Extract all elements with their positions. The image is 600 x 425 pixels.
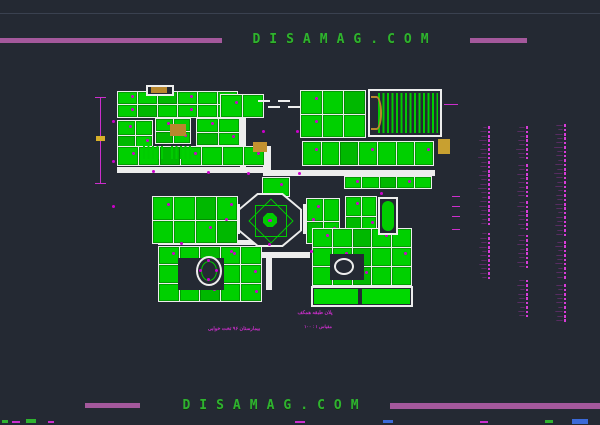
plan-bar-shape xyxy=(95,97,106,98)
door-symbol-dot xyxy=(112,205,115,208)
plan-room-cluster xyxy=(220,94,264,118)
door-symbol-dot xyxy=(211,122,214,125)
legend-row: ــــ xyxy=(460,276,490,279)
stage-arc-shape xyxy=(371,96,382,130)
edge-artifact xyxy=(545,420,553,423)
edge-artifact xyxy=(480,421,488,423)
door-symbol-dot xyxy=(280,183,283,186)
door-symbol-dot xyxy=(207,171,210,174)
door-symbol-dot xyxy=(215,269,218,272)
scale-caption: مقیاس ۱ : ۱۰۰ xyxy=(296,325,340,330)
edge-artifact xyxy=(26,419,36,423)
plan-hatch-area xyxy=(143,146,165,159)
door-symbol-dot xyxy=(315,120,318,123)
door-symbol-dot xyxy=(326,234,329,237)
edge-artifact xyxy=(2,420,8,423)
legend-row: ـــــ xyxy=(460,222,490,225)
plan-bar-shape xyxy=(268,106,280,108)
plan-hatch-area xyxy=(171,146,191,159)
plan-bar-shape xyxy=(452,196,460,197)
door-symbol-dot xyxy=(152,170,155,173)
plan-bar-shape xyxy=(96,136,105,141)
plan-circular-feature xyxy=(196,256,222,286)
door-symbol-dot xyxy=(112,160,115,163)
plan-bar-shape xyxy=(314,289,358,304)
door-symbol-dot xyxy=(172,252,175,255)
door-symbol-dot xyxy=(268,219,271,222)
plan-title-caption: پلان طبقه همکف xyxy=(280,311,350,317)
door-symbol-dot xyxy=(310,250,313,253)
door-symbol-dot xyxy=(371,148,374,151)
plan-bar-shape xyxy=(362,289,410,304)
plan-bar-shape xyxy=(278,100,290,102)
door-symbol-dot xyxy=(132,152,135,155)
door-symbol-dot xyxy=(315,148,318,151)
plan-bar-shape xyxy=(382,201,394,231)
edge-artifact xyxy=(572,419,588,424)
door-symbol-dot xyxy=(131,108,134,111)
door-symbol-dot xyxy=(232,135,235,138)
legend-row: ـــــ xyxy=(498,157,528,160)
edge-artifact xyxy=(12,421,20,423)
door-symbol-dot xyxy=(167,203,170,206)
door-symbol-dot xyxy=(268,243,271,246)
door-symbol-dot xyxy=(199,269,202,272)
edge-artifact xyxy=(383,420,393,423)
door-symbol-dot xyxy=(427,148,430,151)
legend-row: ــــ xyxy=(498,227,528,230)
plan-bar-shape xyxy=(452,206,460,207)
door-symbol-dot xyxy=(129,125,132,128)
door-symbol-dot xyxy=(235,101,238,104)
plan-bar-shape xyxy=(288,106,300,108)
legend-column: ــــــــــــــــــــــــــــــــــــــــ… xyxy=(460,126,490,281)
door-symbol-dot xyxy=(371,221,374,224)
plan-bar-shape xyxy=(444,104,458,105)
door-symbol-dot xyxy=(209,226,212,229)
door-symbol-dot xyxy=(380,192,383,195)
watermark-text-bottom: DISAMAG.COM xyxy=(178,399,372,412)
plan-bar-shape xyxy=(266,256,272,290)
plan-bar-shape xyxy=(151,87,167,93)
edge-artifact xyxy=(48,421,54,423)
bottom-left-watermark-bar xyxy=(85,403,140,408)
plan-hatch-area xyxy=(378,93,438,133)
project-title-caption: بیمارستان ۹۶ تخت خوابی xyxy=(194,327,274,333)
legend-column: ــــــــــــــــــــــــــــــــــــــــ… xyxy=(498,126,528,319)
plan-room-cluster xyxy=(300,90,366,138)
edge-artifact xyxy=(295,421,305,423)
door-symbol-dot xyxy=(356,180,359,183)
door-symbol-dot xyxy=(408,180,411,183)
plan-circular-feature xyxy=(334,258,354,275)
plan-bar-shape xyxy=(170,124,186,136)
door-symbol-dot xyxy=(247,172,250,175)
door-symbol-dot xyxy=(296,130,299,133)
bottom-right-watermark-bar xyxy=(390,403,600,409)
plan-bar-shape xyxy=(95,183,106,184)
door-symbol-dot xyxy=(315,97,318,100)
legend-row: ـــــ xyxy=(536,276,566,279)
plan-room-cluster xyxy=(344,176,432,189)
plan-bar-shape xyxy=(452,229,460,230)
cad-viewport: DISAMAG.COM ــــــــــــــــــــــــــــ… xyxy=(0,0,600,425)
door-symbol-dot xyxy=(254,270,257,273)
plan-room-cluster xyxy=(302,141,434,166)
door-symbol-dot xyxy=(356,202,359,205)
door-symbol-dot xyxy=(230,250,233,253)
door-symbol-dot xyxy=(207,259,210,262)
plan-room-cluster xyxy=(117,146,265,166)
legend-row: ـــــ xyxy=(498,315,528,318)
door-symbol-dot xyxy=(365,271,368,274)
plan-bar-shape xyxy=(452,216,460,217)
door-symbol-dot xyxy=(255,290,258,293)
door-symbol-dot xyxy=(112,120,115,123)
legend-row: ـــــ xyxy=(498,265,528,268)
door-symbol-dot xyxy=(194,152,197,155)
plan-bar-shape xyxy=(253,142,267,152)
door-symbol-dot xyxy=(312,218,315,221)
door-symbol-dot xyxy=(230,203,233,206)
legend-row: ــــــ xyxy=(536,319,566,322)
door-symbol-dot xyxy=(225,218,228,221)
door-symbol-dot xyxy=(262,130,265,133)
door-symbol-dot xyxy=(146,139,149,142)
legend-column: ــــــــــــــــــــــــــــــــــــــــ… xyxy=(536,124,566,324)
legend-row: ــــــ xyxy=(536,233,566,236)
legend-row: ــــــ xyxy=(498,195,528,198)
door-symbol-dot xyxy=(298,172,301,175)
plan-room-cluster xyxy=(196,118,240,146)
door-symbol-dot xyxy=(180,242,183,245)
plan-bar-shape xyxy=(258,100,270,102)
plan-bar-shape xyxy=(438,139,450,154)
